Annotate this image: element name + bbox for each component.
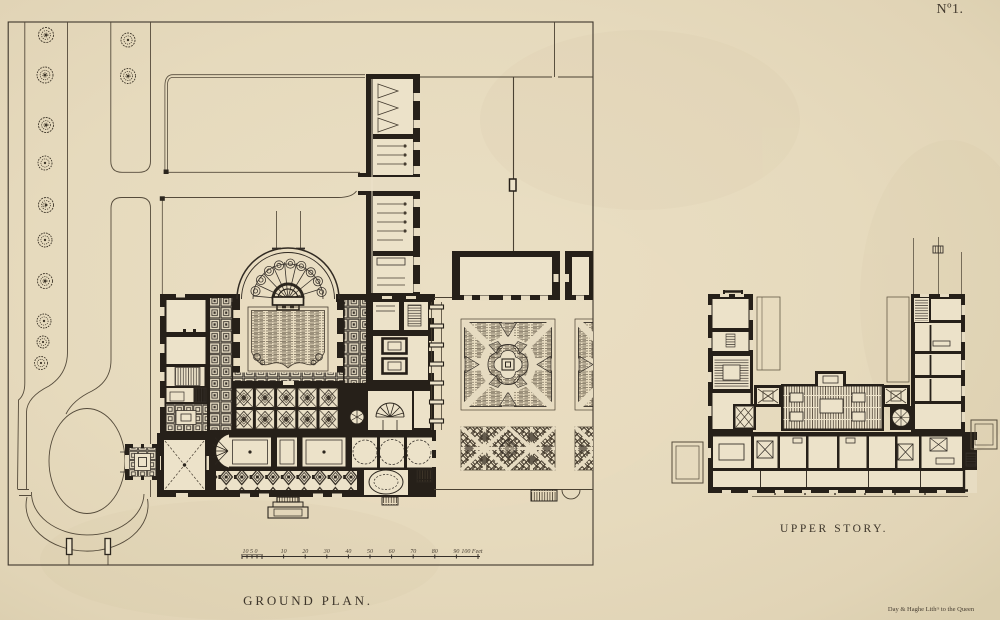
svg-text:UPPER STORY.: UPPER STORY.: [780, 523, 888, 535]
svg-text:50: 50: [367, 549, 373, 555]
svg-text:80: 80: [432, 549, 438, 555]
svg-text:20: 20: [302, 549, 308, 555]
svg-text:90: 90: [453, 549, 459, 555]
svg-text:60: 60: [389, 549, 395, 555]
svg-text:10 5 0: 10 5 0: [243, 549, 258, 555]
svg-text:Nº1.: Nº1.: [937, 2, 964, 17]
svg-text:40: 40: [345, 548, 351, 555]
svg-text:100 Feet: 100 Feet: [461, 549, 482, 555]
svg-text:GROUND PLAN.: GROUND PLAN.: [243, 593, 373, 608]
svg-text:30: 30: [323, 549, 330, 555]
svg-text:10: 10: [281, 549, 287, 555]
svg-text:Day & Haghe Lithʳˢ to the Quee: Day & Haghe Lithʳˢ to the Queen: [888, 606, 975, 613]
svg-text:70: 70: [410, 549, 416, 555]
